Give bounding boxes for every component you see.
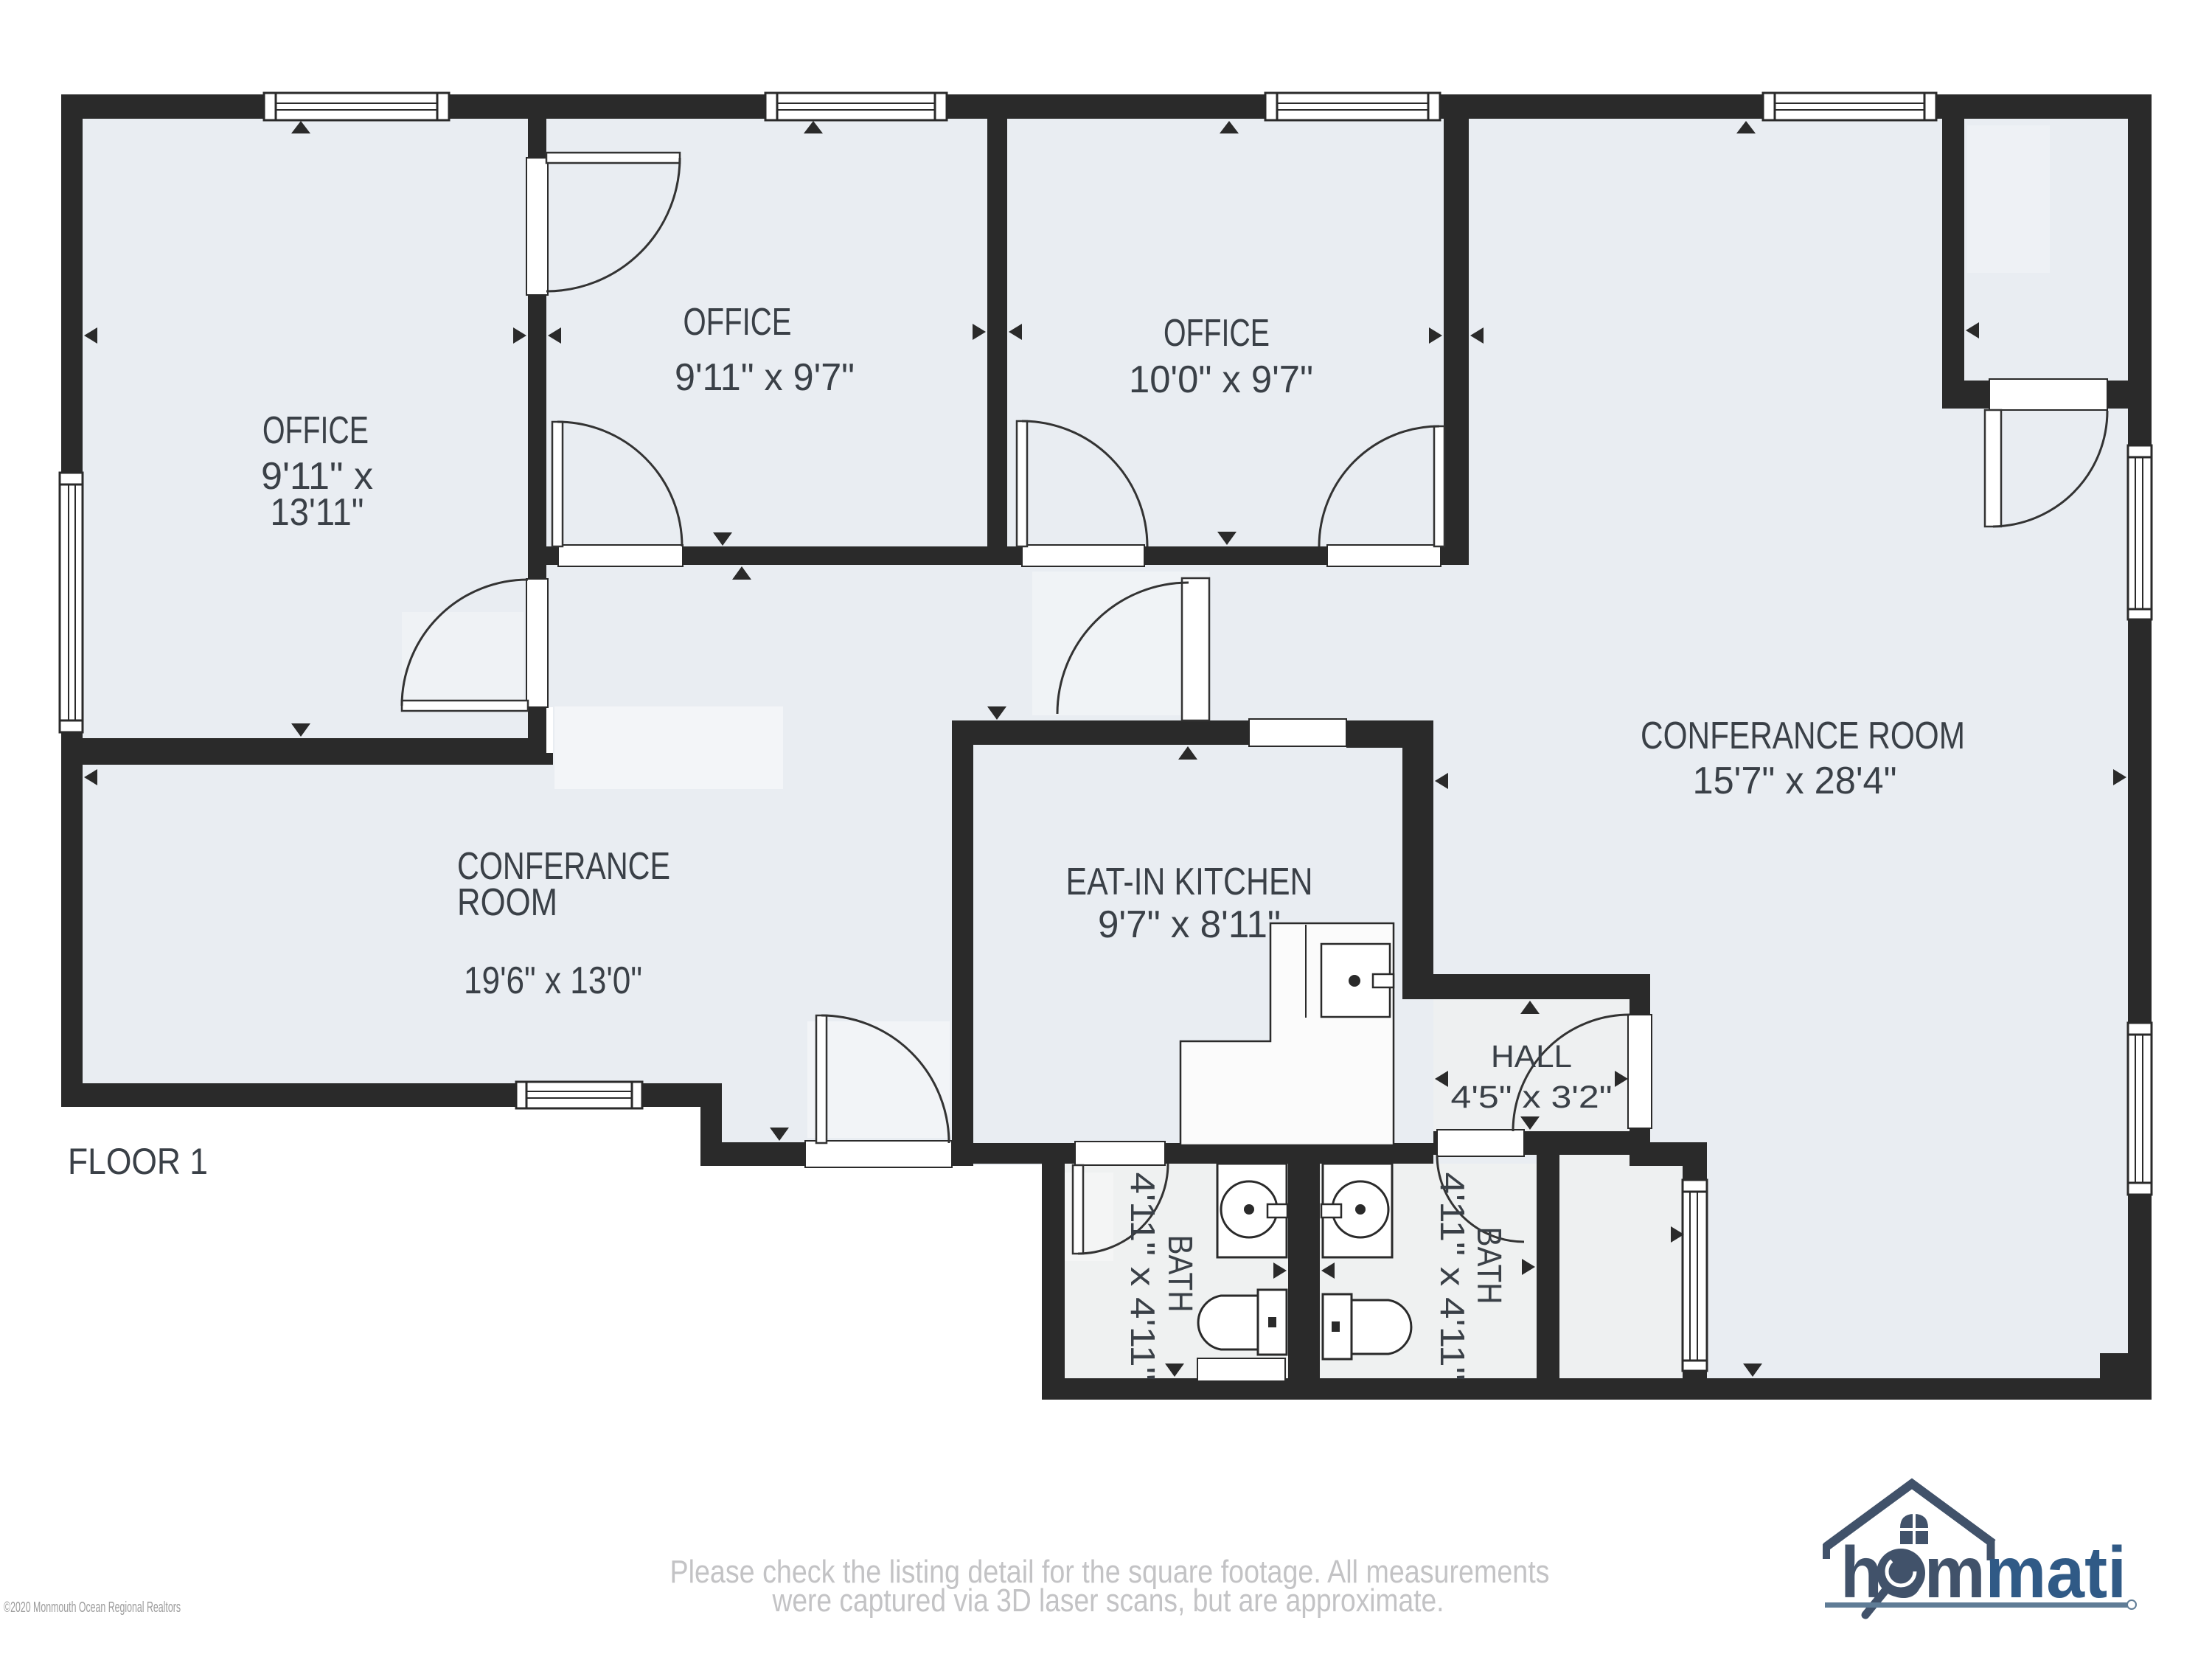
svg-text:ROOM: ROOM bbox=[457, 881, 557, 924]
svg-text:4'5" x 3'2": 4'5" x 3'2" bbox=[1451, 1080, 1613, 1115]
svg-text:OFFICE: OFFICE bbox=[262, 409, 369, 452]
svg-text:10'0" x 9'7": 10'0" x 9'7" bbox=[1129, 358, 1313, 401]
svg-text:OFFICE: OFFICE bbox=[1164, 312, 1270, 355]
svg-text:4'11" x 4'11": 4'11" x 4'11" bbox=[1124, 1173, 1162, 1381]
svg-text:4'11" x 4'11": 4'11" x 4'11" bbox=[1433, 1173, 1472, 1381]
svg-text:9'11" x 9'7": 9'11" x 9'7" bbox=[675, 356, 855, 399]
svg-text:©2020 Monmouth Ocean Regional: ©2020 Monmouth Ocean Regional Realtors bbox=[4, 1599, 181, 1616]
svg-text:HALL: HALL bbox=[1491, 1039, 1572, 1074]
svg-text:BATH: BATH bbox=[1470, 1227, 1509, 1305]
svg-text:19'6" x 13'0": 19'6" x 13'0" bbox=[464, 959, 642, 1002]
svg-text:OFFICE: OFFICE bbox=[684, 301, 792, 344]
svg-text:9'7" x 8'11": 9'7" x 8'11" bbox=[1098, 903, 1281, 946]
svg-text:were captured via 3D laser sca: were captured via 3D laser scans, but ar… bbox=[772, 1583, 1444, 1619]
svg-text:EAT-IN KITCHEN: EAT-IN KITCHEN bbox=[1066, 861, 1313, 903]
svg-text:BATH: BATH bbox=[1161, 1235, 1200, 1313]
svg-text:CONFERANCE ROOM: CONFERANCE ROOM bbox=[1641, 715, 1965, 757]
svg-text:FLOOR 1: FLOOR 1 bbox=[68, 1141, 208, 1182]
svg-text:15'7" x 28'4": 15'7" x 28'4" bbox=[1693, 760, 1897, 802]
svg-text:13'11": 13'11" bbox=[271, 491, 364, 534]
